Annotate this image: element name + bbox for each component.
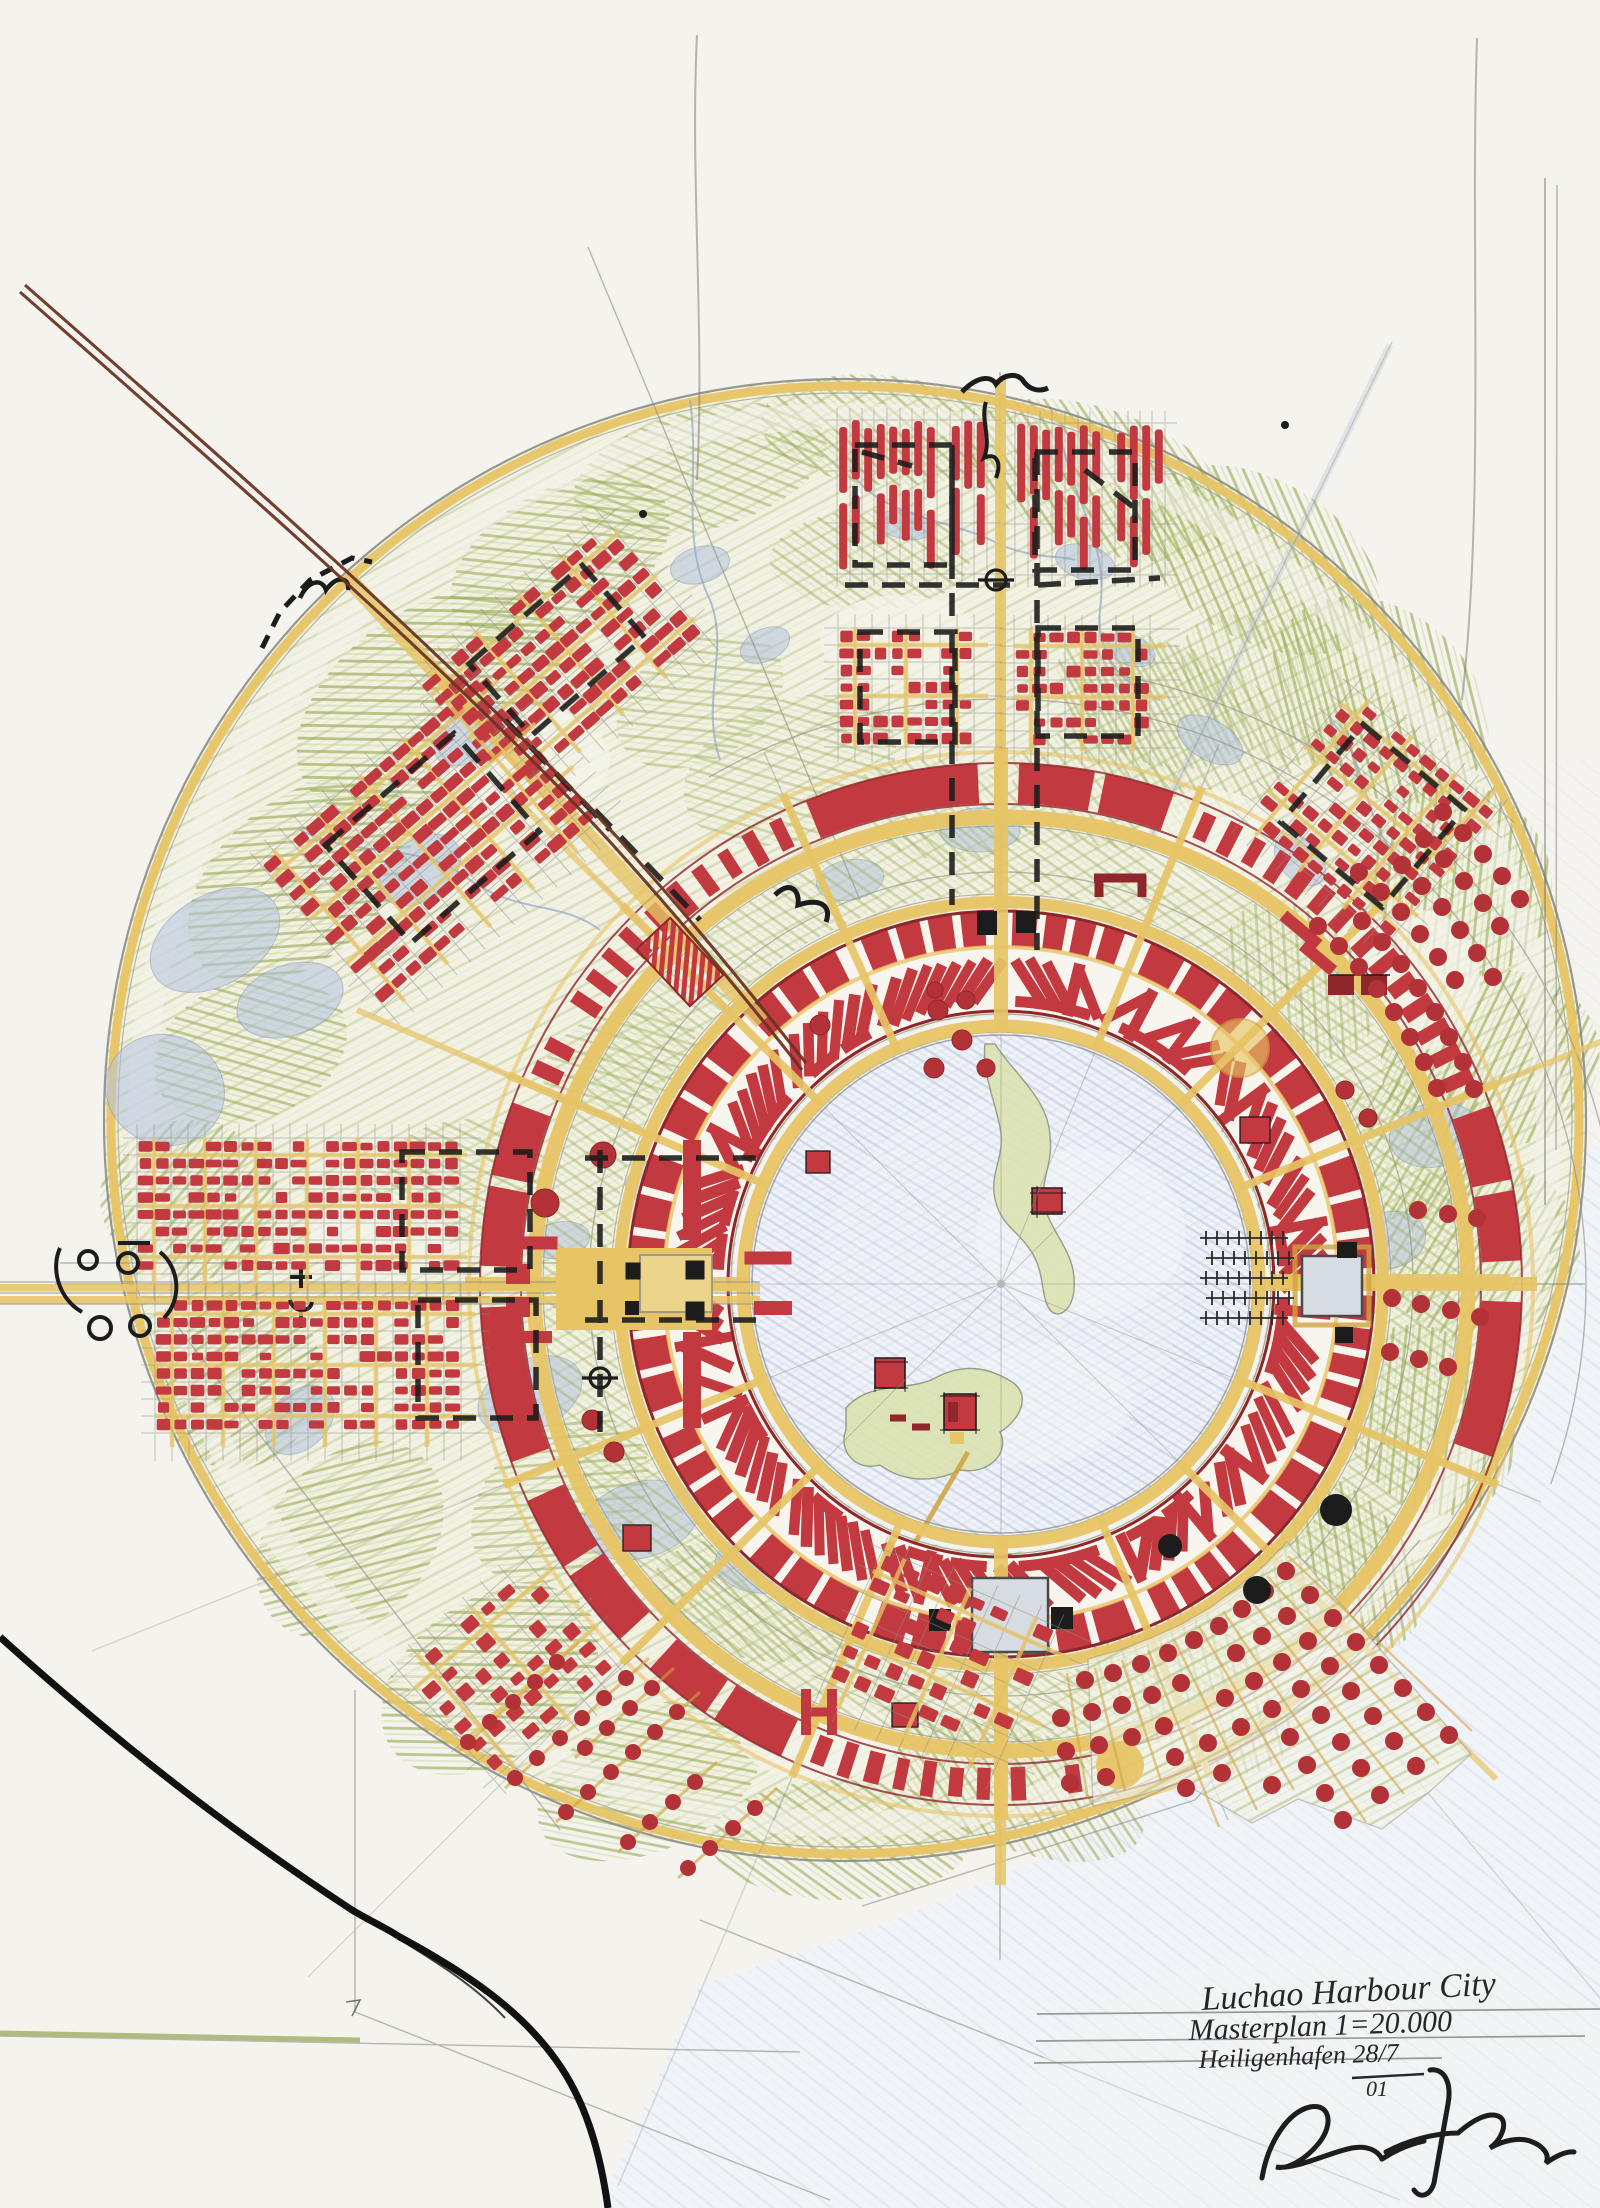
- svg-text:01: 01: [1366, 2076, 1388, 2101]
